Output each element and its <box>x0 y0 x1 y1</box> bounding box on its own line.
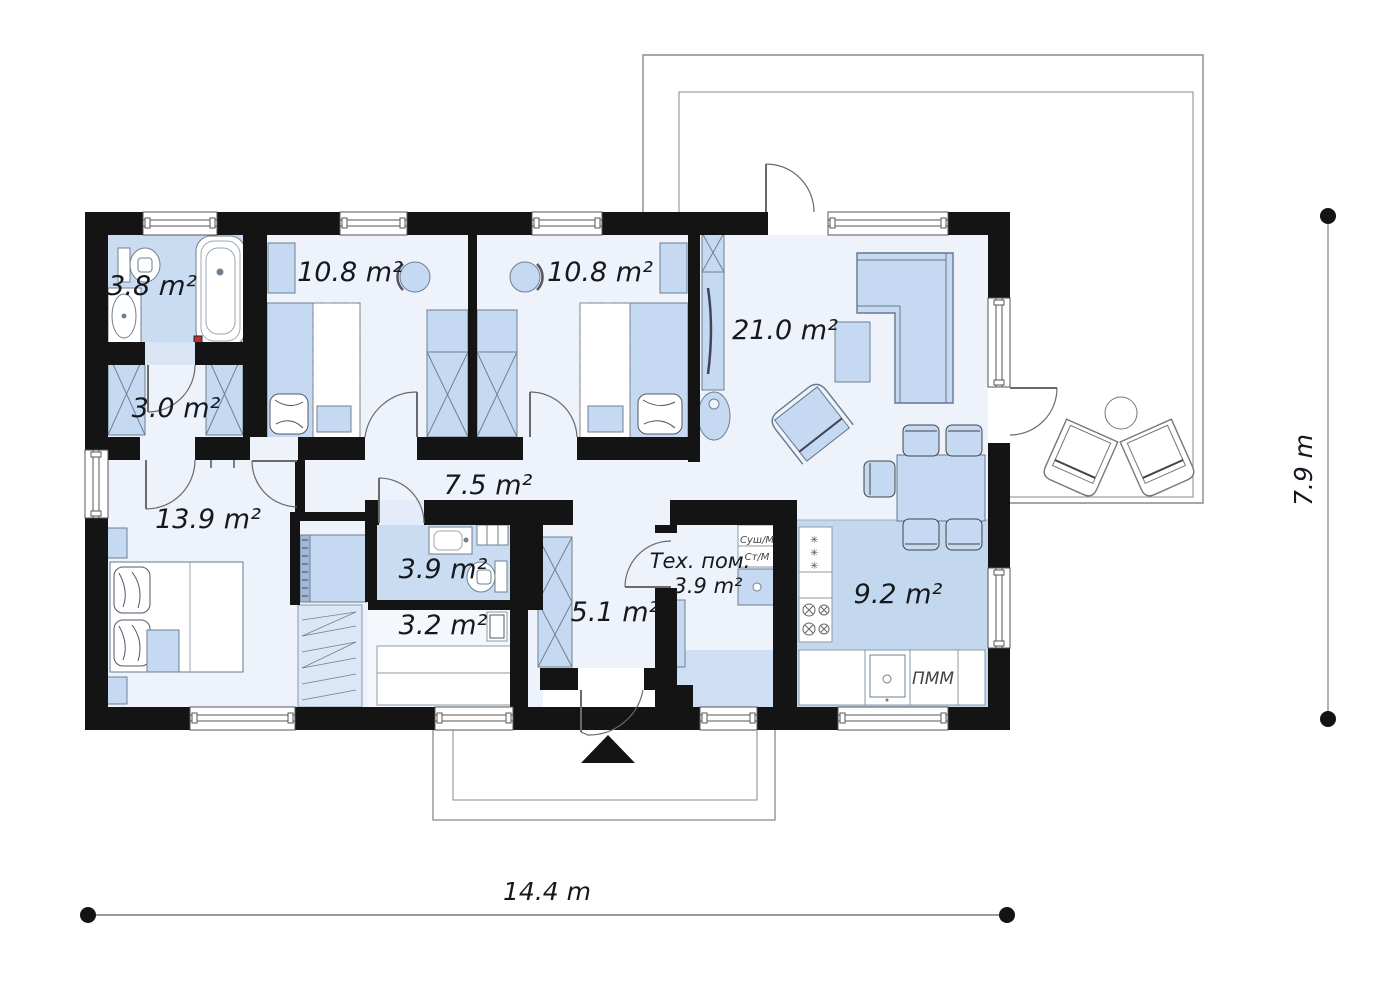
label-living-room: 21.0 m² <box>732 315 838 346</box>
wall-exterior-right <box>988 212 1010 730</box>
freezer-star-icon: ✳ <box>810 548 818 559</box>
freezer-star-icon: ✳ <box>810 535 818 546</box>
floor-plan: ✳ ✳ ✳ ПММ <box>0 0 1400 990</box>
dryer-label: Суш/М <box>740 535 774 546</box>
coffee-table <box>835 322 870 382</box>
lounge-chair-1 <box>1041 419 1117 498</box>
wardrobe <box>310 535 366 602</box>
stove <box>799 598 832 642</box>
counter <box>799 572 832 598</box>
dishwasher-label: ПММ <box>912 669 954 689</box>
wardrobe <box>538 537 572 667</box>
nightstand <box>105 528 127 558</box>
freezer-star-icon: ✳ <box>810 561 818 572</box>
window <box>838 707 948 730</box>
label-corridor: 7.5 m² <box>444 470 533 501</box>
wardrobe <box>477 310 517 352</box>
bedside-table <box>588 406 623 432</box>
label-tech-room-name: Тех. пом. <box>650 549 751 573</box>
entry-wardrobe <box>538 537 572 667</box>
window <box>143 212 217 235</box>
shelf-row <box>377 646 512 673</box>
label-kitchen: 9.2 m² <box>854 579 943 610</box>
wardrobe <box>427 310 468 352</box>
label-bedroom-1: 10.8 m² <box>297 257 403 288</box>
window <box>435 707 513 730</box>
washer-label: Ст/М <box>745 552 770 563</box>
label-bathroom-2: 3.9 m² <box>399 554 488 585</box>
terrace-furniture <box>1041 397 1196 499</box>
tv-cabinet <box>702 272 724 390</box>
entrance-arrow-icon <box>581 735 635 763</box>
toilet-tank <box>495 561 507 592</box>
shelf-row <box>377 673 512 705</box>
label-storage: 3.2 m² <box>399 610 488 641</box>
window <box>190 707 295 730</box>
shelf <box>477 525 508 545</box>
dimension-bottom: 14.4 m <box>80 877 1015 923</box>
window <box>988 298 1010 387</box>
window <box>700 707 757 730</box>
lounge-chair-2 <box>1120 419 1196 498</box>
window <box>828 212 948 235</box>
floor-plan-page: ✳ ✳ ✳ ПММ <box>0 0 1400 990</box>
terrace-table <box>1105 397 1137 429</box>
dresser <box>660 243 687 293</box>
label-master-bedroom: 13.9 m² <box>155 504 261 535</box>
window <box>340 212 407 235</box>
bedside-table <box>317 406 351 432</box>
shelving-unit <box>298 605 362 707</box>
window <box>85 450 108 518</box>
dresser <box>268 243 295 293</box>
pillow <box>638 394 682 434</box>
dimension-depth-label: 7.9 m <box>1289 434 1318 506</box>
dimension-width-label: 14.4 m <box>503 877 591 906</box>
dimension-right: 7.9 m <box>1289 208 1336 727</box>
bathtub <box>196 236 245 346</box>
label-tech-room-area: 3.9 m² <box>674 574 744 598</box>
window <box>532 212 602 235</box>
dining-table <box>897 455 985 521</box>
door-terrace-top <box>766 164 814 212</box>
label-entry-hall: 5.1 m² <box>571 597 660 628</box>
bed-throw <box>147 630 179 672</box>
nightstand <box>105 677 127 704</box>
label-bedroom-2: 10.8 m² <box>547 257 653 288</box>
master-closet <box>298 535 366 707</box>
window <box>988 568 1010 648</box>
sliding-door-track <box>300 535 310 602</box>
door-terrace-right <box>1010 388 1057 435</box>
chair <box>400 262 430 292</box>
label-bathroom-1: 3.8 m² <box>107 271 198 302</box>
chair <box>510 262 540 292</box>
label-hall: 3.0 m² <box>132 393 221 424</box>
